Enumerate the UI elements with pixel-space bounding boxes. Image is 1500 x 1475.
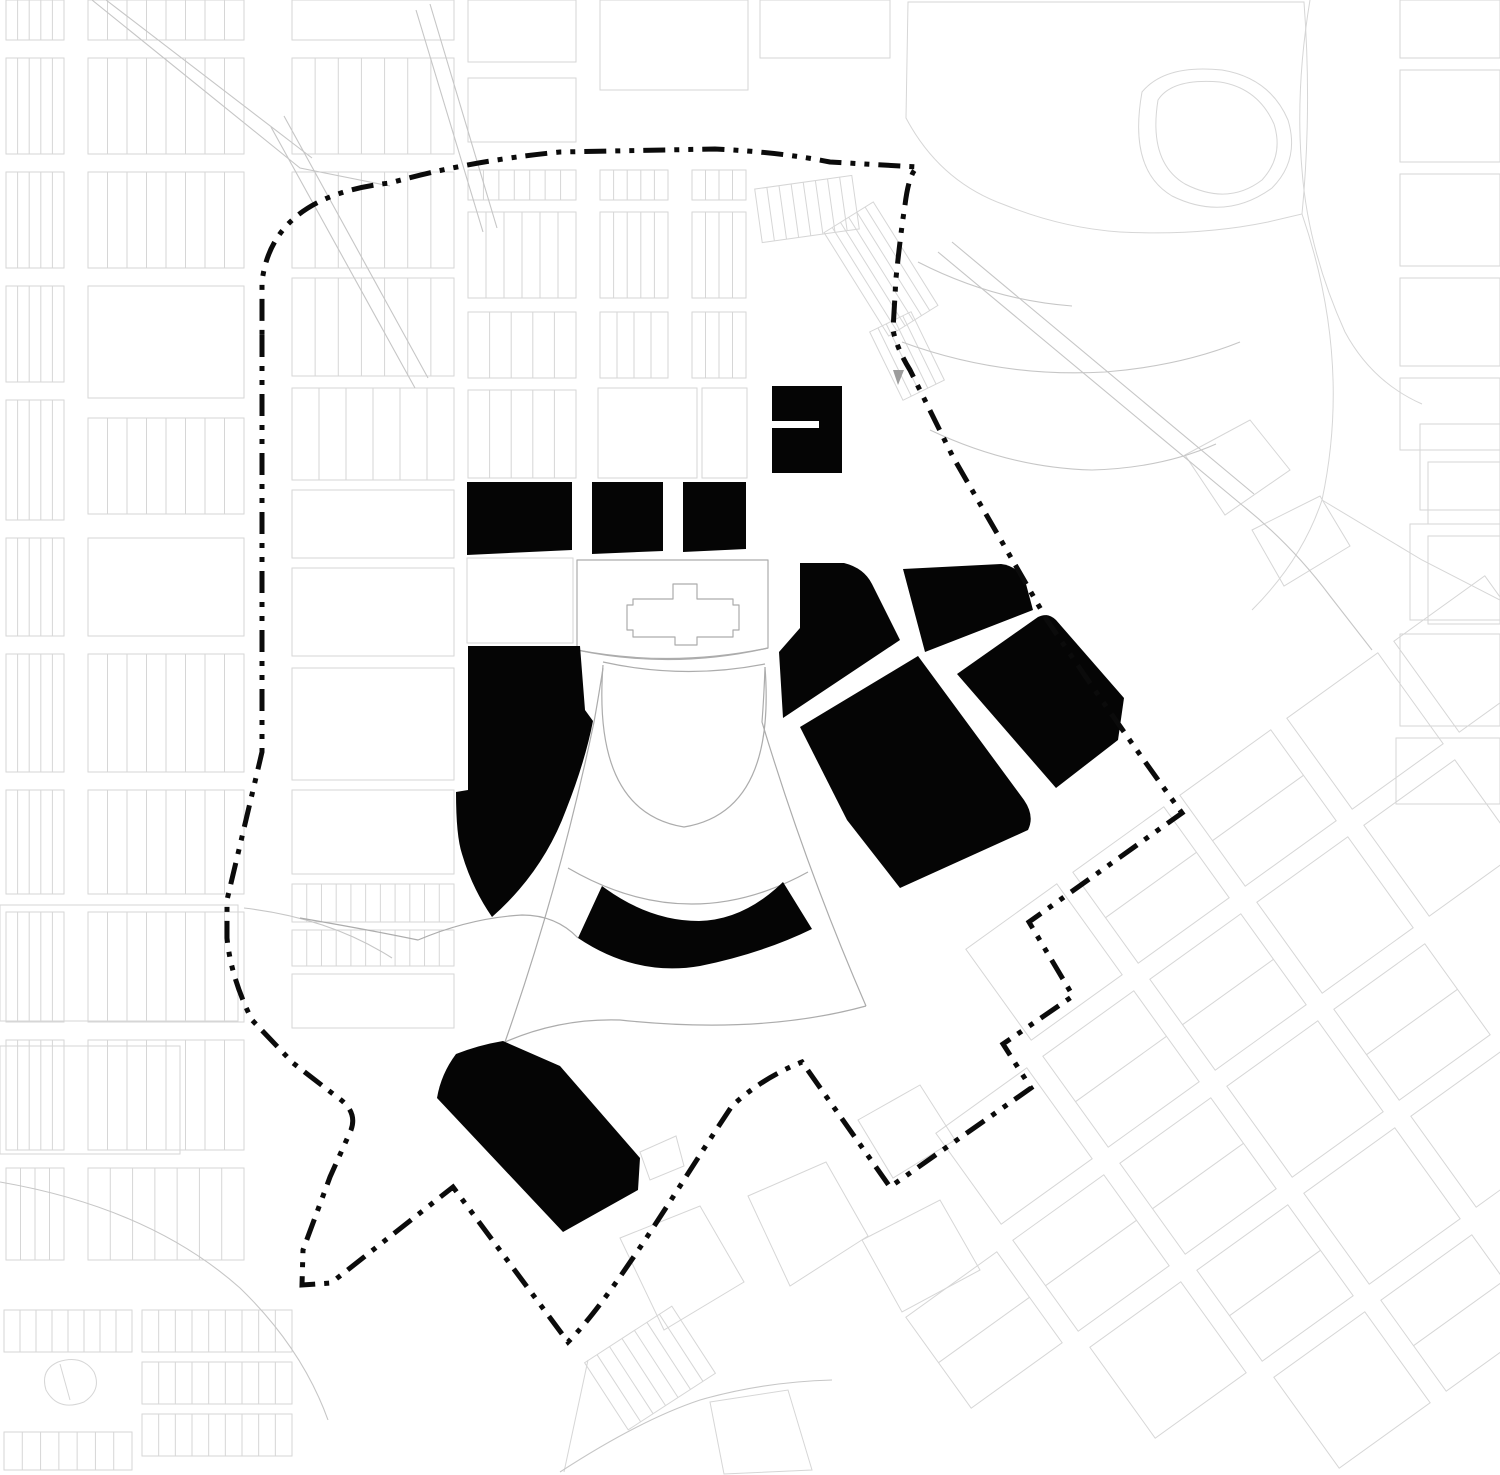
parcel-block-outline [6,654,64,772]
rotated-block-subdivision [1046,1220,1137,1285]
parcel-block [88,790,244,894]
parcel-block-outline [292,790,454,874]
site-plan-svg [0,0,1500,1475]
parcel-block-outline [142,1362,292,1404]
parcel-block-outline [468,312,576,378]
parcel-block [88,418,244,514]
parcel-block-outline [6,790,64,894]
parcel-block [292,388,454,480]
fan-outer-arc [505,1006,866,1042]
road-line [952,242,1254,494]
parcel-block-outline [88,538,244,636]
parcel-strip-line [828,179,836,232]
parcel-block [6,0,64,40]
parcel-block [88,654,244,772]
parcel-block-outline [292,490,454,558]
parcel-block [6,912,64,1022]
rotated-block [936,1068,1092,1224]
parcel-strip-line [903,316,936,384]
parcel-block-outline [585,1306,716,1430]
parcel-block [4,1310,132,1352]
parcel-plain-block [760,0,890,58]
rotated-block [1274,1312,1430,1468]
parcel-block [142,1310,292,1352]
parcel-plain-block [598,388,697,478]
parcel-block [88,0,244,40]
parcel-block [600,170,668,200]
parcel-organic-outline [620,1206,744,1330]
rotated-block [1381,1235,1500,1391]
background-roads-layer [0,0,1372,1472]
parcel-plain-block [1410,524,1500,620]
parcel-block [142,1414,292,1456]
rotated-block [1334,944,1490,1100]
parcel-plain-block [1400,634,1500,726]
rotated-block-outline [1227,1021,1383,1177]
parcel-block-outline [292,974,454,1028]
background-parcels-layer [0,0,1500,1474]
parcel-block [292,790,454,874]
rotated-block-subdivision [1183,959,1274,1024]
rotated-block [906,1252,1062,1408]
rotated-block [1090,1282,1246,1438]
rotated-block [1227,1021,1383,1177]
forecourt-moat-arc-2 [603,662,765,672]
parcel-block-outline [292,568,454,656]
parcel-block-outline [600,170,668,200]
parcel-block [6,58,64,154]
parcel-organic-outline [710,1390,812,1474]
rotated-block [1180,730,1336,886]
parcel-plain-block [1400,0,1500,58]
parcel-organic-outline [862,1200,980,1312]
rotated-block-subdivision [1230,1250,1321,1315]
parcel-plain-block [0,1046,180,1154]
parcel-block [6,1168,64,1260]
parcel-plain-block [702,388,747,478]
parcel-plain-block [1428,462,1500,524]
parcel-block-outline [6,172,64,268]
parcel-block [692,170,746,200]
parcel-plain-block [1396,738,1500,804]
parcel-plain-block [467,558,573,643]
parcel-block [88,912,244,1022]
rotated-block-outline [1274,1312,1430,1468]
rotated-block-subdivision [1153,1143,1244,1208]
parcel-strip-line [803,182,811,235]
parcel-block-outline [292,668,454,780]
building-footprint-west-superblock [456,646,593,917]
rotated-block [1013,1175,1169,1331]
parcel-strip-line [791,184,799,237]
parcel-block-outline [600,212,668,298]
parcel-block-outline [292,278,454,376]
parcel-plain-block [1400,70,1500,162]
parcel-organic-outline [1139,69,1292,207]
parcel-strip-line [815,181,823,234]
semicircular-bowl [602,665,766,827]
parcel-block-outline [88,1168,244,1260]
parcel-block [292,58,454,154]
road-line [902,342,1240,373]
rotated-block [1364,760,1500,916]
parcel-block-outline [6,538,64,636]
parcel-plain-block [1400,174,1500,266]
parcel-block [468,390,576,478]
parcel-organic-outline [45,1360,97,1406]
parcel-block [88,1168,244,1260]
parcel-block [755,175,860,242]
parcel-block [870,312,945,400]
building-footprint-east-row-block [683,482,746,552]
rotated-block-outline [1257,837,1413,993]
rotated-block-outline [1411,1051,1500,1207]
rotated-block-subdivision [1367,989,1458,1054]
road-line [938,252,1242,505]
road-line [92,0,390,186]
parcel-block-outline [292,884,454,922]
parcel-plain-block [0,905,238,1021]
parcel-plain-block [1420,424,1500,510]
parcel-block [692,212,746,298]
parcel-organic-outline [564,1360,588,1472]
parcel-block [88,286,244,398]
rotated-block [1150,914,1306,1070]
parcel-block [142,1362,292,1404]
rotated-block-outline [1364,760,1500,916]
building-footprint-west-row-block [467,482,572,555]
rotated-block [1411,1051,1500,1207]
rotated-block-subdivision [939,1297,1030,1362]
parcel-strip-line [622,1338,666,1405]
rotated-block [1304,1128,1460,1284]
parcel-block [468,212,576,298]
road-line [284,116,428,378]
road-line [430,4,497,228]
parcel-plain-block [468,0,576,62]
parcel-plain-block [468,78,576,142]
parcel-strip-line [779,186,787,239]
parcel-block-outline [292,58,454,154]
rotated-block-outline [1304,1128,1460,1284]
rotated-block [1287,653,1443,809]
parcel-block-outline [468,390,576,478]
rotated-block-outline [1287,653,1443,809]
parcel-block [6,790,64,894]
parcel-block [292,974,454,1028]
parcel-block [6,172,64,268]
road-line [930,430,1216,470]
rotated-block [1043,991,1199,1147]
parcel-block [292,568,454,656]
parcel-plain-block [600,0,748,90]
parcel-block [6,1040,64,1150]
parcel-block [88,58,244,154]
rotated-block-outline [936,1068,1092,1224]
parcel-block [6,286,64,382]
parcel-organic-outline [1300,0,1422,404]
parcel-plain-block [1400,278,1500,366]
parcel-organic-outline [1252,496,1350,586]
parcel-organic-outline [748,1162,868,1286]
parcel-block [292,278,454,376]
road-line [106,0,312,158]
rotated-block-outline [1381,1235,1500,1391]
rotated-block [1120,1098,1276,1254]
parcel-block-outline [4,1432,132,1470]
parcel-block-outline [6,1040,64,1150]
rotated-block [1073,807,1229,963]
parcel-block-outline [6,0,64,40]
parcel-strip-line [634,1330,678,1397]
rotated-block-subdivision [1106,852,1197,917]
parcel-block [692,312,746,378]
parcel-block [88,1040,244,1150]
parcel-organic-outline [640,1136,684,1180]
parcel-block [4,1432,132,1470]
parcel-plain-block [1400,378,1500,450]
parcel-block-outline [292,0,454,40]
parcel-block-outline [142,1310,292,1352]
parcel-organic-outline [858,1085,955,1178]
forecourt-moat-arc-1 [577,648,768,660]
parcel-block [6,400,64,520]
rotated-block-subdivision [1414,1280,1500,1345]
parcel-block-outline [6,58,64,154]
road-line [244,908,392,958]
parcel-block-outline [88,286,244,398]
parcel-block [600,212,668,298]
building-footprints-layer [437,386,1124,1232]
parcel-block [292,490,454,558]
rotated-block-outline [1090,1282,1246,1438]
rotated-block-subdivision [1076,1036,1167,1101]
parcel-block-outline [6,912,64,1022]
parcel-strip-line [767,187,775,240]
parcel-block [824,202,938,336]
building-footprint-center-row-block [592,482,663,554]
road-line [1242,505,1372,650]
parcel-block [292,884,454,922]
parcel-block [88,172,244,268]
road-line [416,10,483,232]
parcel-organic-outline [60,1364,70,1400]
parcel-block [6,654,64,772]
parcel-strip-line [647,1322,691,1389]
building-footprint-south-rounded-block [437,1041,640,1232]
road-line [560,1380,832,1472]
parcel-block [468,312,576,378]
parcel-block-outline [142,1414,292,1456]
rotated-block [1257,837,1413,993]
parcel-organic-outline [906,2,1308,233]
parcel-plain-block [1428,536,1500,624]
building-footprint-north-notched-block [772,386,842,473]
parcel-block [88,538,244,636]
road-line [271,127,415,388]
parcel-block [600,312,668,378]
map-viewport [0,0,1500,1475]
rotated-block [1197,1205,1353,1361]
parcel-block-outline [6,286,64,382]
rotated-block-subdivision [1213,775,1304,840]
parcel-block [292,668,454,780]
parcel-block [6,538,64,636]
parcel-block [292,0,454,40]
parcel-strip-line [597,1355,641,1422]
parcel-block-outline [6,400,64,520]
parcel-strip-line [610,1347,654,1414]
cross-building-footprint [627,584,739,645]
parcel-organic-outline [1322,500,1500,600]
parcel-organic-outline [1156,81,1277,194]
parcel-strip-line [659,1314,703,1381]
parcel-block [585,1306,716,1430]
building-footprint-crescent-arc-building [578,882,812,968]
